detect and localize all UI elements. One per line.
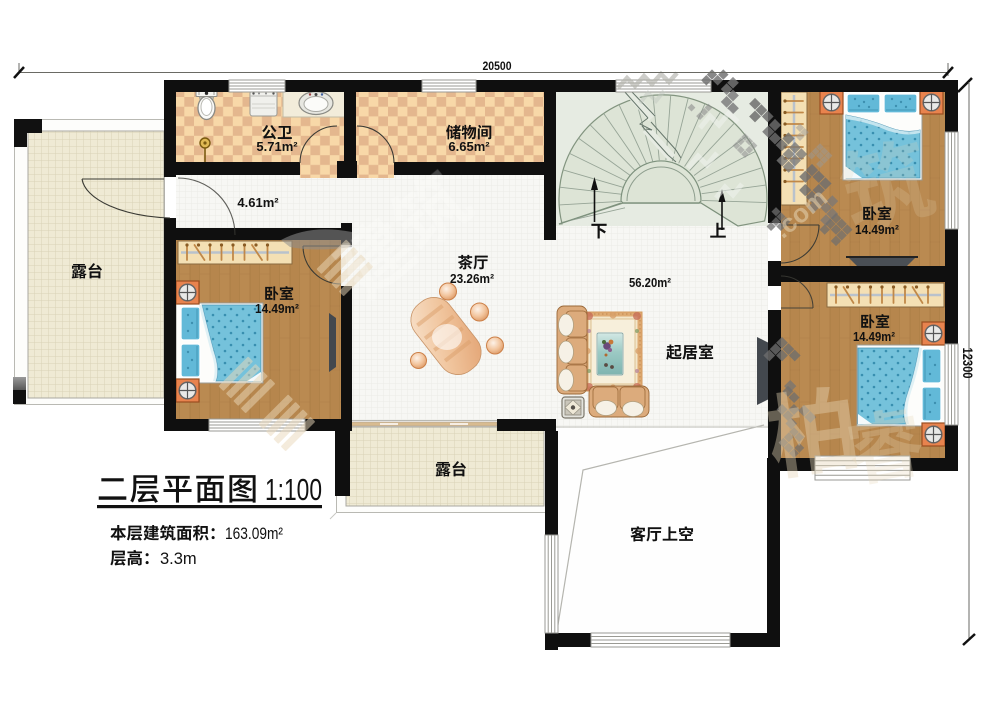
svg-text:56.20m²: 56.20m² bbox=[629, 275, 672, 290]
svg-text:23.26m²: 23.26m² bbox=[450, 271, 495, 286]
svg-text:14.49m²: 14.49m² bbox=[853, 330, 895, 344]
svg-text:4.61m²: 4.61m² bbox=[237, 195, 279, 210]
svg-text:1:100: 1:100 bbox=[265, 473, 322, 507]
svg-text:14.49m²: 14.49m² bbox=[855, 223, 899, 237]
svg-text:14.49m²: 14.49m² bbox=[255, 302, 299, 316]
svg-text:3.3m: 3.3m bbox=[160, 550, 197, 568]
svg-text:20500: 20500 bbox=[483, 59, 512, 73]
svg-text:5.71m²: 5.71m² bbox=[256, 139, 298, 154]
svg-text:12300: 12300 bbox=[960, 348, 975, 379]
svg-text:6.65m²: 6.65m² bbox=[448, 139, 490, 154]
svg-text:163.09m²: 163.09m² bbox=[225, 525, 283, 543]
